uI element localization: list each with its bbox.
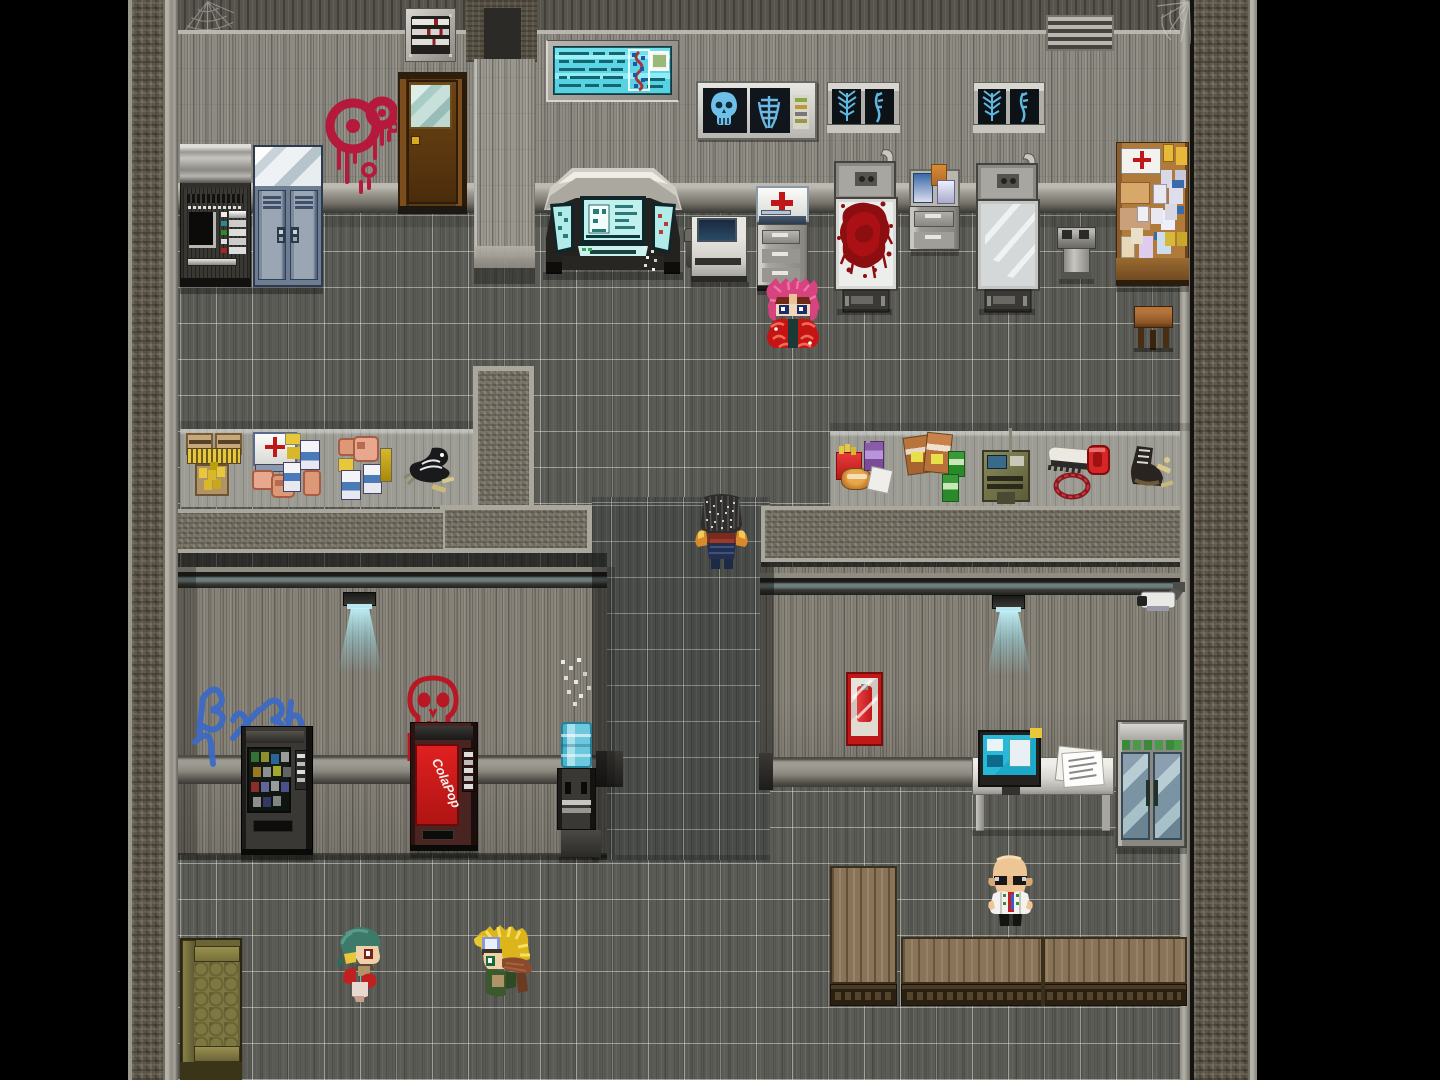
svg-text:ColaPop: ColaPop: [429, 756, 459, 810]
